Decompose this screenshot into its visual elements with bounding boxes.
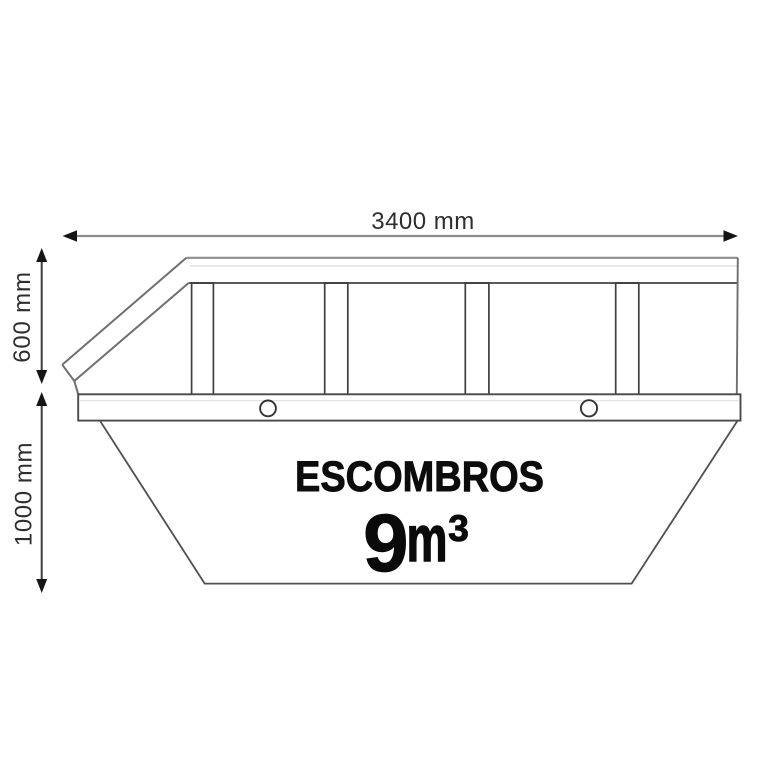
- svg-text:3: 3: [448, 508, 469, 549]
- svg-text:1000 mm: 1000 mm: [11, 442, 38, 546]
- svg-text:3400 mm: 3400 mm: [371, 208, 475, 235]
- svg-text:600 mm: 600 mm: [9, 271, 36, 363]
- svg-text:9: 9: [363, 498, 409, 589]
- svg-text:m: m: [407, 502, 448, 575]
- svg-text:ESCOMBROS: ESCOMBROS: [295, 454, 544, 501]
